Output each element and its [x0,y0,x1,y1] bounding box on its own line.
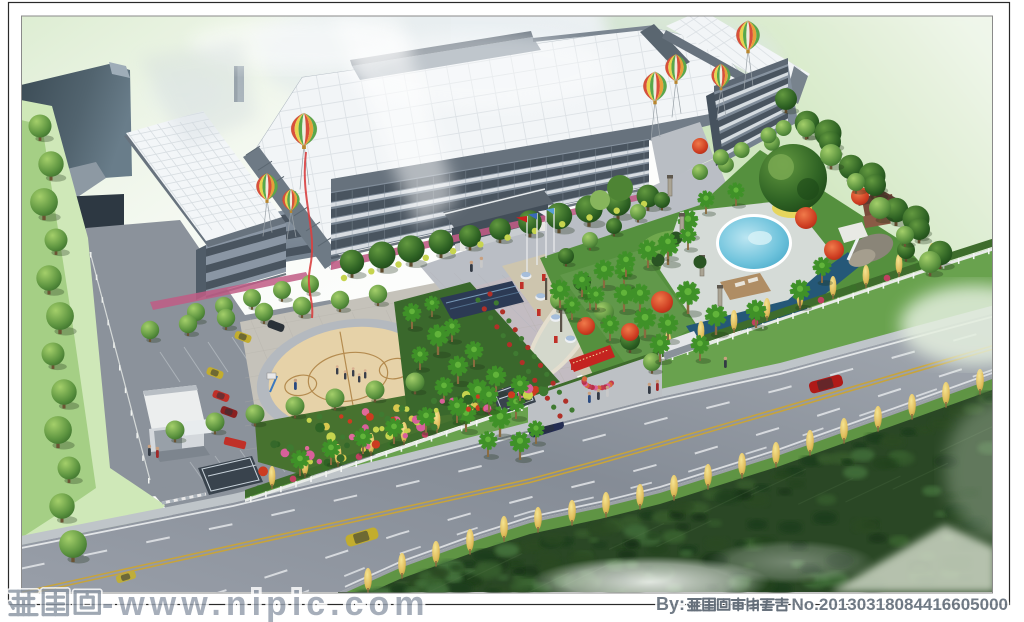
svg-text:No.20130318084416605000: No.20130318084416605000 [792,595,1008,614]
svg-text:-www.nipic.com: -www.nipic.com [102,585,430,622]
svg-text:By:: By: [656,594,685,614]
